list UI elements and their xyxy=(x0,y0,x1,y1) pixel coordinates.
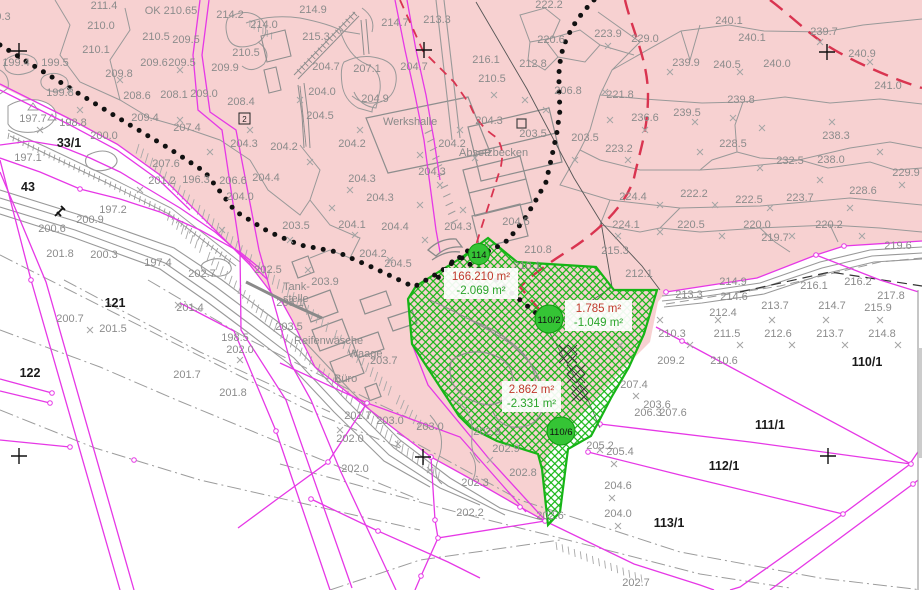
svg-text:112/1: 112/1 xyxy=(709,459,740,473)
svg-text:208.6: 208.6 xyxy=(123,90,151,102)
svg-text:203.9: 203.9 xyxy=(311,276,339,288)
svg-text:121: 121 xyxy=(105,296,126,310)
svg-text:220.6: 220.6 xyxy=(537,34,565,46)
svg-text:Tank-: Tank- xyxy=(283,281,310,293)
svg-text:203.5: 203.5 xyxy=(571,132,599,144)
svg-text:223.9: 223.9 xyxy=(594,28,622,40)
svg-text:202.3: 202.3 xyxy=(461,477,489,489)
svg-text:222.2: 222.2 xyxy=(535,0,563,11)
svg-text:212.1: 212.1 xyxy=(625,268,653,280)
svg-text:204.4: 204.4 xyxy=(252,172,280,184)
svg-text:204.2: 204.2 xyxy=(359,248,387,260)
svg-text:203.5: 203.5 xyxy=(275,321,303,333)
svg-text:216.1: 216.1 xyxy=(472,54,500,66)
svg-text:203.5: 203.5 xyxy=(282,220,310,232)
svg-text:203.0: 203.0 xyxy=(416,421,444,433)
svg-text:204.4: 204.4 xyxy=(381,221,409,233)
svg-text:200.0: 200.0 xyxy=(90,130,118,142)
svg-text:214.9: 214.9 xyxy=(299,4,327,16)
svg-text:211.4: 211.4 xyxy=(91,0,118,12)
svg-text:204.5: 204.5 xyxy=(384,258,412,270)
svg-text:211.5: 211.5 xyxy=(714,328,741,340)
svg-text:214.7: 214.7 xyxy=(381,17,409,29)
svg-text:202.7: 202.7 xyxy=(188,268,216,280)
svg-text:219.6: 219.6 xyxy=(884,240,912,252)
svg-text:215.3: 215.3 xyxy=(302,31,330,43)
svg-text:239.8: 239.8 xyxy=(727,94,755,106)
svg-text:122: 122 xyxy=(20,366,41,380)
svg-text:228.5: 228.5 xyxy=(719,138,747,150)
svg-text:213.7: 213.7 xyxy=(761,300,789,312)
svg-text:209.0: 209.0 xyxy=(190,88,218,100)
svg-text:201.8: 201.8 xyxy=(219,387,247,399)
svg-text:-2.069 m²: -2.069 m² xyxy=(456,285,505,297)
svg-text:240.0: 240.0 xyxy=(763,58,791,70)
svg-text:200.3: 200.3 xyxy=(90,249,118,261)
svg-text:223.7: 223.7 xyxy=(786,192,814,204)
svg-text:212.4: 212.4 xyxy=(709,307,737,319)
svg-text:201.5: 201.5 xyxy=(99,323,127,335)
svg-text:208.4: 208.4 xyxy=(227,96,255,108)
svg-text:239.5: 239.5 xyxy=(673,107,701,119)
svg-text:212.6: 212.6 xyxy=(764,328,792,340)
svg-text:202.2: 202.2 xyxy=(456,507,484,519)
svg-text:208.1: 208.1 xyxy=(160,89,188,101)
svg-text:209.8: 209.8 xyxy=(105,68,133,80)
svg-text:202.7: 202.7 xyxy=(622,577,650,589)
svg-text:110/2: 110/2 xyxy=(537,315,560,326)
svg-text:166.210 m²: 166.210 m² xyxy=(452,271,510,283)
svg-text:Büro: Büro xyxy=(334,373,357,385)
svg-text:238.0: 238.0 xyxy=(817,154,845,166)
svg-text:202.0: 202.0 xyxy=(341,463,369,475)
svg-text:206.3: 206.3 xyxy=(634,407,662,419)
svg-text:204.2: 204.2 xyxy=(270,141,298,153)
svg-text:210.8: 210.8 xyxy=(524,244,552,256)
svg-text:204.7: 204.7 xyxy=(312,61,340,73)
svg-text:199.4: 199.4 xyxy=(2,57,30,69)
svg-text:204.0: 204.0 xyxy=(604,508,632,520)
svg-text:214.7: 214.7 xyxy=(818,300,846,312)
svg-text:240.1: 240.1 xyxy=(715,15,743,27)
svg-text:204.3: 204.3 xyxy=(418,166,446,178)
svg-text:239.9: 239.9 xyxy=(672,57,700,69)
svg-text:213.3: 213.3 xyxy=(675,289,703,301)
svg-text:214.6: 214.6 xyxy=(720,291,748,303)
svg-text:241.0: 241.0 xyxy=(874,80,902,92)
svg-text:207.4: 207.4 xyxy=(620,379,648,391)
svg-text:204.0: 204.0 xyxy=(226,191,254,203)
svg-text:229.9: 229.9 xyxy=(892,167,920,179)
svg-text:214.8: 214.8 xyxy=(868,328,896,340)
svg-text:204.3: 204.3 xyxy=(366,192,394,204)
svg-text:223.2: 223.2 xyxy=(605,143,633,155)
svg-text:215.9: 215.9 xyxy=(864,302,892,314)
svg-text:210.6: 210.6 xyxy=(710,355,738,367)
svg-text:212.8: 212.8 xyxy=(519,58,547,70)
svg-text:-2.331 m²: -2.331 m² xyxy=(507,398,556,410)
svg-text:206.6: 206.6 xyxy=(219,175,247,187)
svg-text:209.2: 209.2 xyxy=(657,355,685,367)
svg-text:240.1: 240.1 xyxy=(738,32,766,44)
svg-text:197.2: 197.2 xyxy=(99,204,127,216)
svg-text:216.2: 216.2 xyxy=(844,276,872,288)
svg-text:204.3: 204.3 xyxy=(230,138,258,150)
svg-text:209.5: 209.5 xyxy=(172,34,200,46)
svg-text:236.6: 236.6 xyxy=(631,112,659,124)
svg-text:204.3: 204.3 xyxy=(348,173,376,185)
svg-text:202.5: 202.5 xyxy=(254,264,282,276)
svg-text:203.0: 203.0 xyxy=(376,415,404,427)
svg-text:204.7: 204.7 xyxy=(400,61,428,73)
svg-text:202.6: 202.6 xyxy=(536,510,564,522)
svg-text:220.2: 220.2 xyxy=(815,219,843,231)
svg-text:204.6: 204.6 xyxy=(604,480,632,492)
svg-text:215.3: 215.3 xyxy=(601,245,629,257)
svg-text:114: 114 xyxy=(471,250,486,261)
svg-text:-1.049 m²: -1.049 m² xyxy=(574,317,623,329)
svg-text:220.5: 220.5 xyxy=(677,219,705,231)
svg-text:43: 43 xyxy=(21,180,35,194)
svg-text:207.6: 207.6 xyxy=(152,158,180,170)
svg-text:9.3: 9.3 xyxy=(0,11,11,23)
svg-text:Werkshalle: Werkshalle xyxy=(383,116,437,128)
svg-text:224.1: 224.1 xyxy=(612,219,640,231)
svg-text:205.4: 205.4 xyxy=(606,446,634,458)
svg-text:220.0: 220.0 xyxy=(743,219,771,231)
svg-text:202.9: 202.9 xyxy=(492,443,520,455)
svg-text:197.1: 197.1 xyxy=(14,152,42,164)
svg-text:238.3: 238.3 xyxy=(822,130,850,142)
svg-text:2: 2 xyxy=(242,115,247,124)
svg-text:210.1: 210.1 xyxy=(82,44,110,56)
svg-text:OK 210.65: OK 210.65 xyxy=(145,5,198,17)
svg-text:204.5: 204.5 xyxy=(502,216,530,228)
svg-text:201.7: 201.7 xyxy=(173,369,201,381)
svg-text:239.7: 239.7 xyxy=(810,26,838,38)
svg-text:228.6: 228.6 xyxy=(849,185,877,197)
svg-text:198.5: 198.5 xyxy=(221,332,249,344)
svg-text:204.9: 204.9 xyxy=(361,93,389,105)
svg-text:201.8: 201.8 xyxy=(46,248,74,260)
svg-text:206.8: 206.8 xyxy=(554,85,582,97)
svg-text:210.5: 210.5 xyxy=(142,31,170,43)
svg-text:209.5: 209.5 xyxy=(168,57,196,69)
svg-text:33/1: 33/1 xyxy=(57,136,81,150)
svg-text:198.8: 198.8 xyxy=(59,117,87,129)
svg-text:200.6: 200.6 xyxy=(38,223,66,235)
svg-text:199.8: 199.8 xyxy=(46,87,74,99)
svg-text:204.3: 204.3 xyxy=(475,115,503,127)
svg-text:204.1: 204.1 xyxy=(338,219,366,231)
svg-text:219.7: 219.7 xyxy=(761,232,789,244)
svg-text:240.5: 240.5 xyxy=(713,59,741,71)
svg-text:stelle: stelle xyxy=(283,293,309,305)
svg-text:201.7: 201.7 xyxy=(344,410,372,422)
svg-text:202.8: 202.8 xyxy=(509,467,537,479)
svg-text:204.2: 204.2 xyxy=(338,138,366,150)
svg-text:222.2: 222.2 xyxy=(680,188,708,200)
svg-text:204.5: 204.5 xyxy=(306,110,334,122)
svg-text:Reifenwäsche: Reifenwäsche xyxy=(294,335,363,347)
svg-text:207.1: 207.1 xyxy=(353,63,381,75)
svg-text:210.0: 210.0 xyxy=(87,20,115,32)
svg-text:204.0: 204.0 xyxy=(308,86,336,98)
svg-text:197.7: 197.7 xyxy=(19,113,47,125)
svg-text:1.785 m²: 1.785 m² xyxy=(576,303,622,315)
svg-text:201.2: 201.2 xyxy=(148,175,176,187)
svg-text:240.9: 240.9 xyxy=(848,48,876,60)
svg-text:221.8: 221.8 xyxy=(606,89,634,101)
svg-text:209.4: 209.4 xyxy=(131,112,159,124)
svg-text:196.3: 196.3 xyxy=(182,174,210,186)
svg-text:Absetzbecken: Absetzbecken xyxy=(459,147,528,159)
svg-text:216.1: 216.1 xyxy=(800,280,828,292)
svg-text:202.0: 202.0 xyxy=(226,344,254,356)
svg-text:214.2: 214.2 xyxy=(216,9,244,21)
svg-text:110/6: 110/6 xyxy=(549,427,572,438)
svg-text:213.3: 213.3 xyxy=(423,14,451,26)
svg-text:207.6: 207.6 xyxy=(659,407,687,419)
svg-text:203.5: 203.5 xyxy=(519,128,547,140)
svg-text:210.5: 210.5 xyxy=(478,73,506,85)
svg-text:203.7: 203.7 xyxy=(370,355,398,367)
svg-text:110/1: 110/1 xyxy=(852,355,883,369)
svg-text:217.8: 217.8 xyxy=(877,290,905,302)
svg-text:207.4: 207.4 xyxy=(173,122,201,134)
svg-text:197.4: 197.4 xyxy=(144,257,172,269)
svg-text:210.5: 210.5 xyxy=(232,47,260,59)
svg-text:229.0: 229.0 xyxy=(631,33,659,45)
svg-text:222.5: 222.5 xyxy=(735,194,763,206)
svg-text:224.4: 224.4 xyxy=(619,191,647,203)
svg-text:209.9: 209.9 xyxy=(211,62,239,74)
svg-text:111/1: 111/1 xyxy=(755,418,785,432)
svg-text:199.5: 199.5 xyxy=(41,57,69,69)
svg-text:2.862 m²: 2.862 m² xyxy=(509,384,555,396)
svg-text:200.7: 200.7 xyxy=(56,313,84,325)
svg-text:202.9: 202.9 xyxy=(473,426,501,438)
svg-text:213.7: 213.7 xyxy=(816,328,844,340)
svg-text:210.3: 210.3 xyxy=(658,328,686,340)
svg-text:113/1: 113/1 xyxy=(654,516,685,530)
svg-text:214.9: 214.9 xyxy=(719,276,747,288)
svg-text:204.3: 204.3 xyxy=(444,221,472,233)
svg-text:232.5: 232.5 xyxy=(776,155,804,167)
svg-text:202.0: 202.0 xyxy=(336,433,364,445)
svg-text:209.6: 209.6 xyxy=(140,57,168,69)
svg-text:214.0: 214.0 xyxy=(250,19,278,31)
